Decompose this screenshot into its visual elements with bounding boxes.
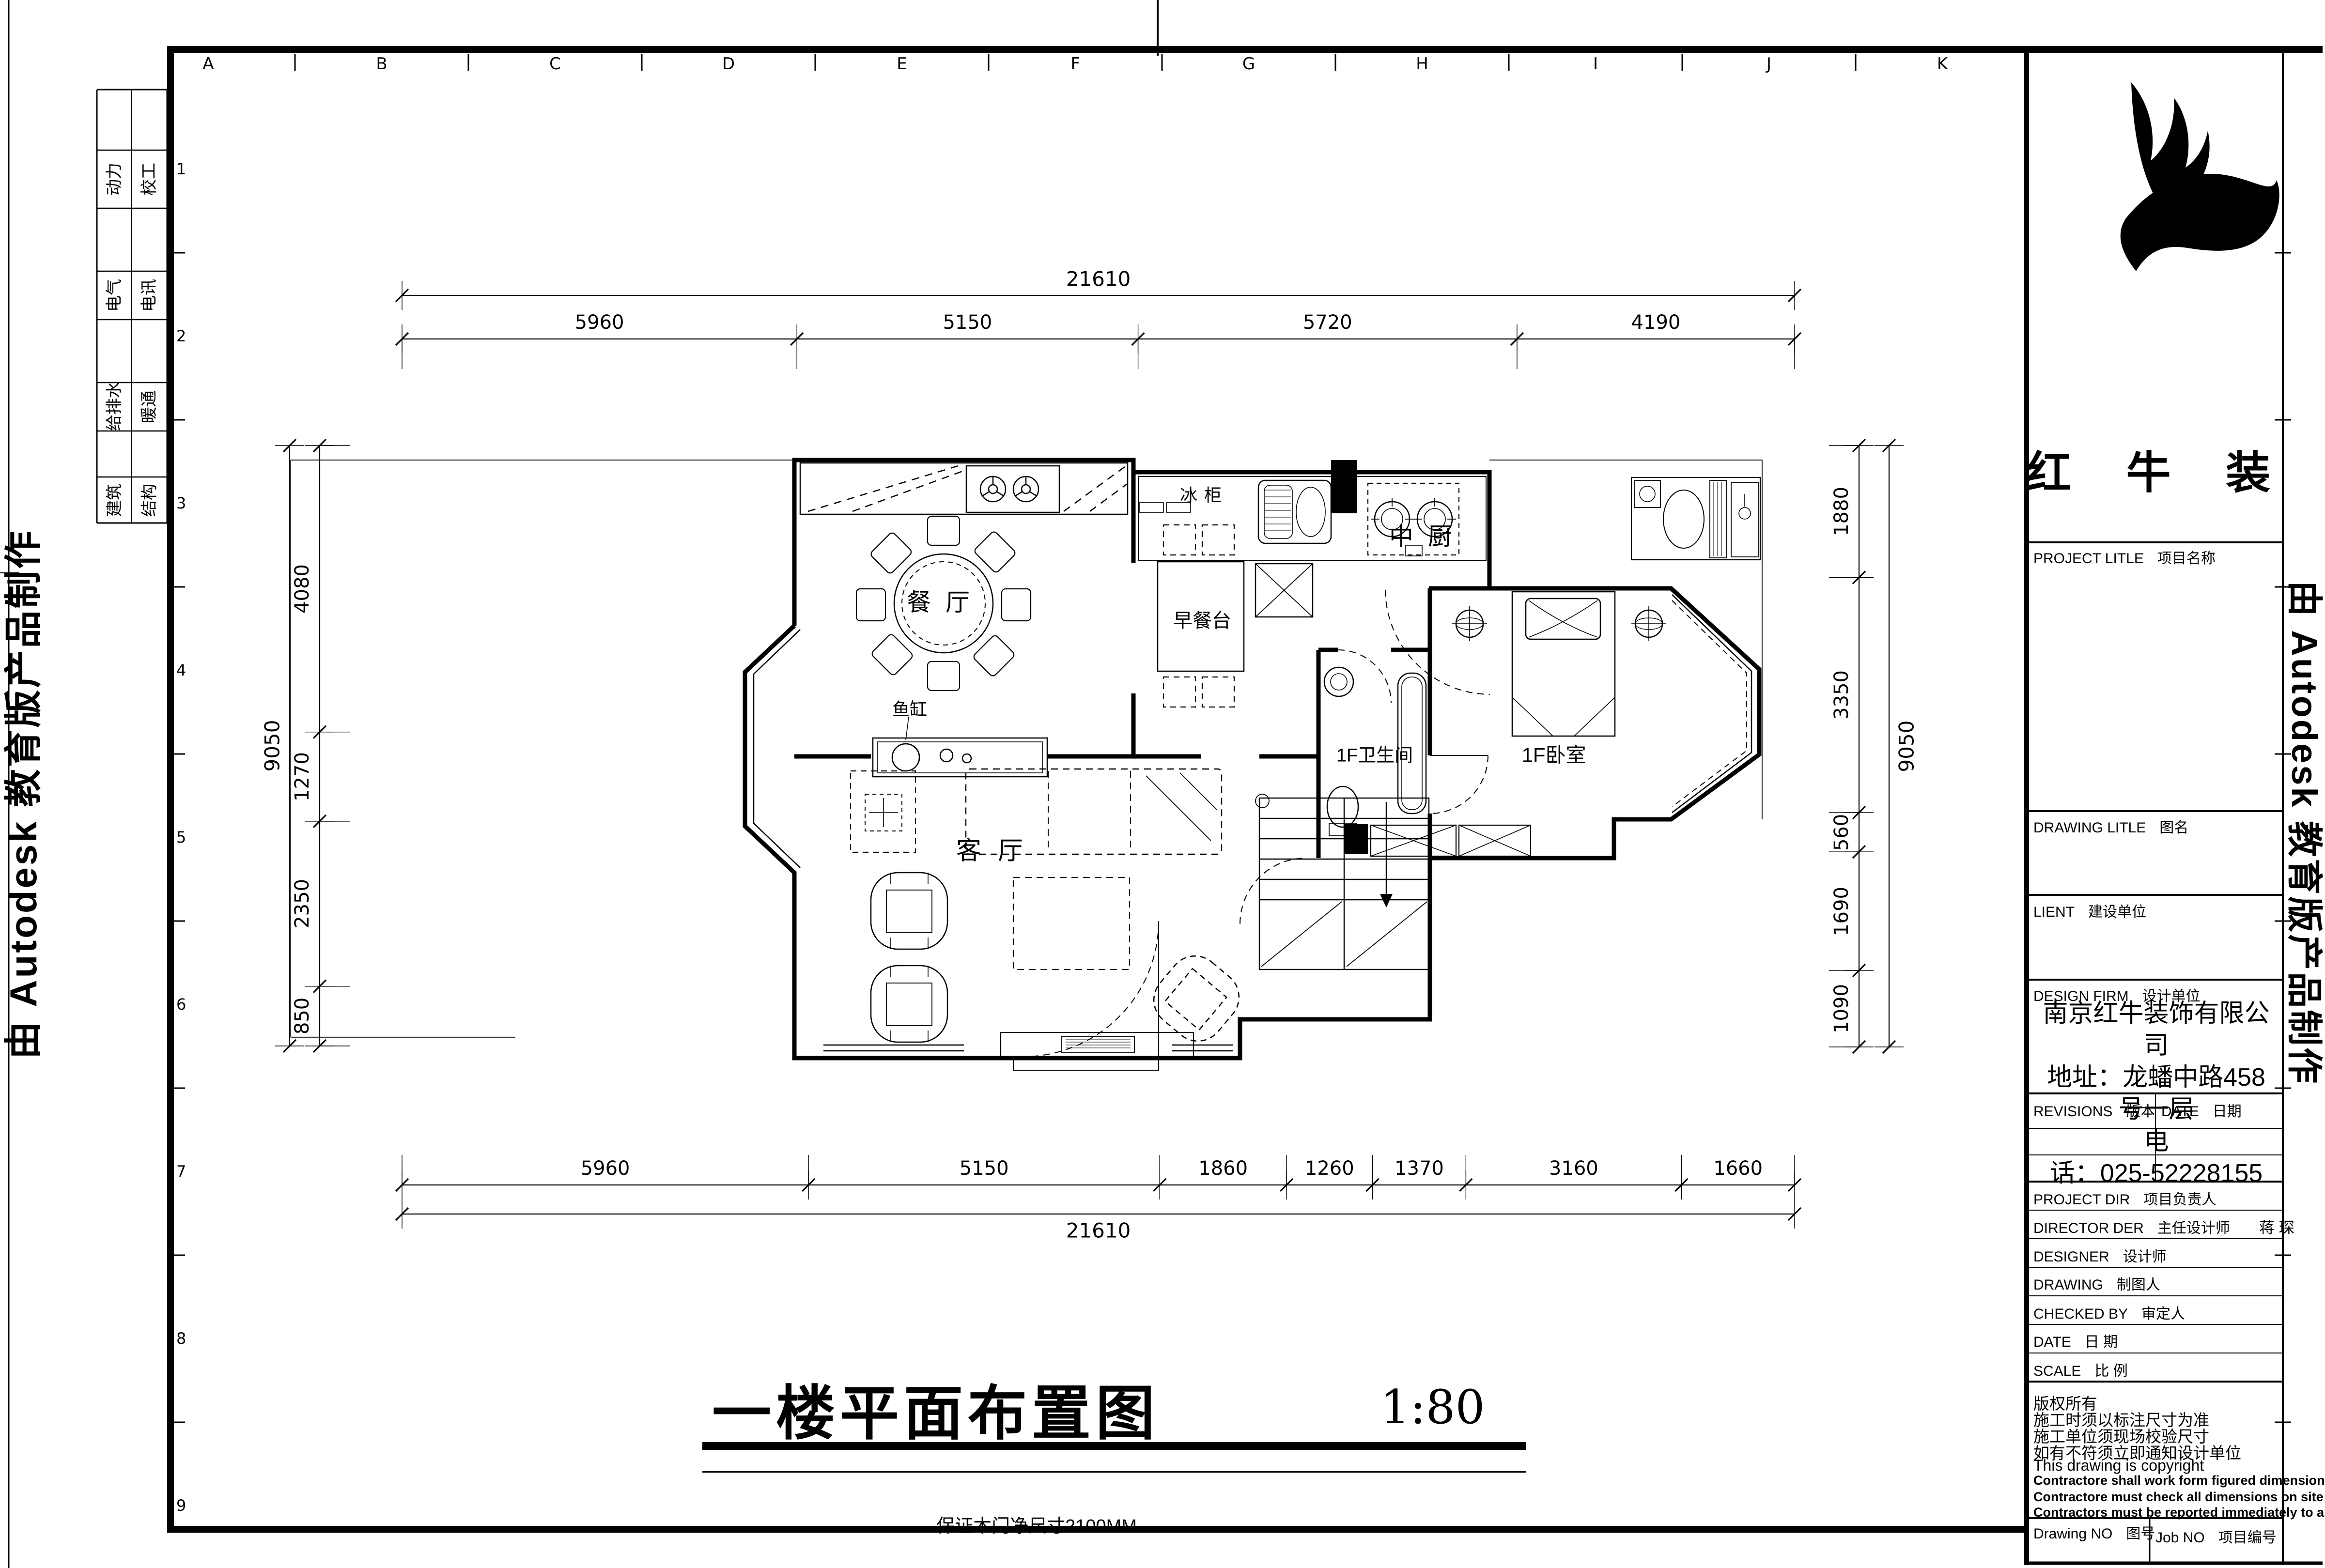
title-block-row-lines (0, 0, 2325, 1568)
drawing-sheet: 餐厅 中厨 早餐台 冰柜 鱼缸 客厅 1F卫生间 1F卧室 一楼平面布置图 1:… (0, 0, 2325, 1568)
